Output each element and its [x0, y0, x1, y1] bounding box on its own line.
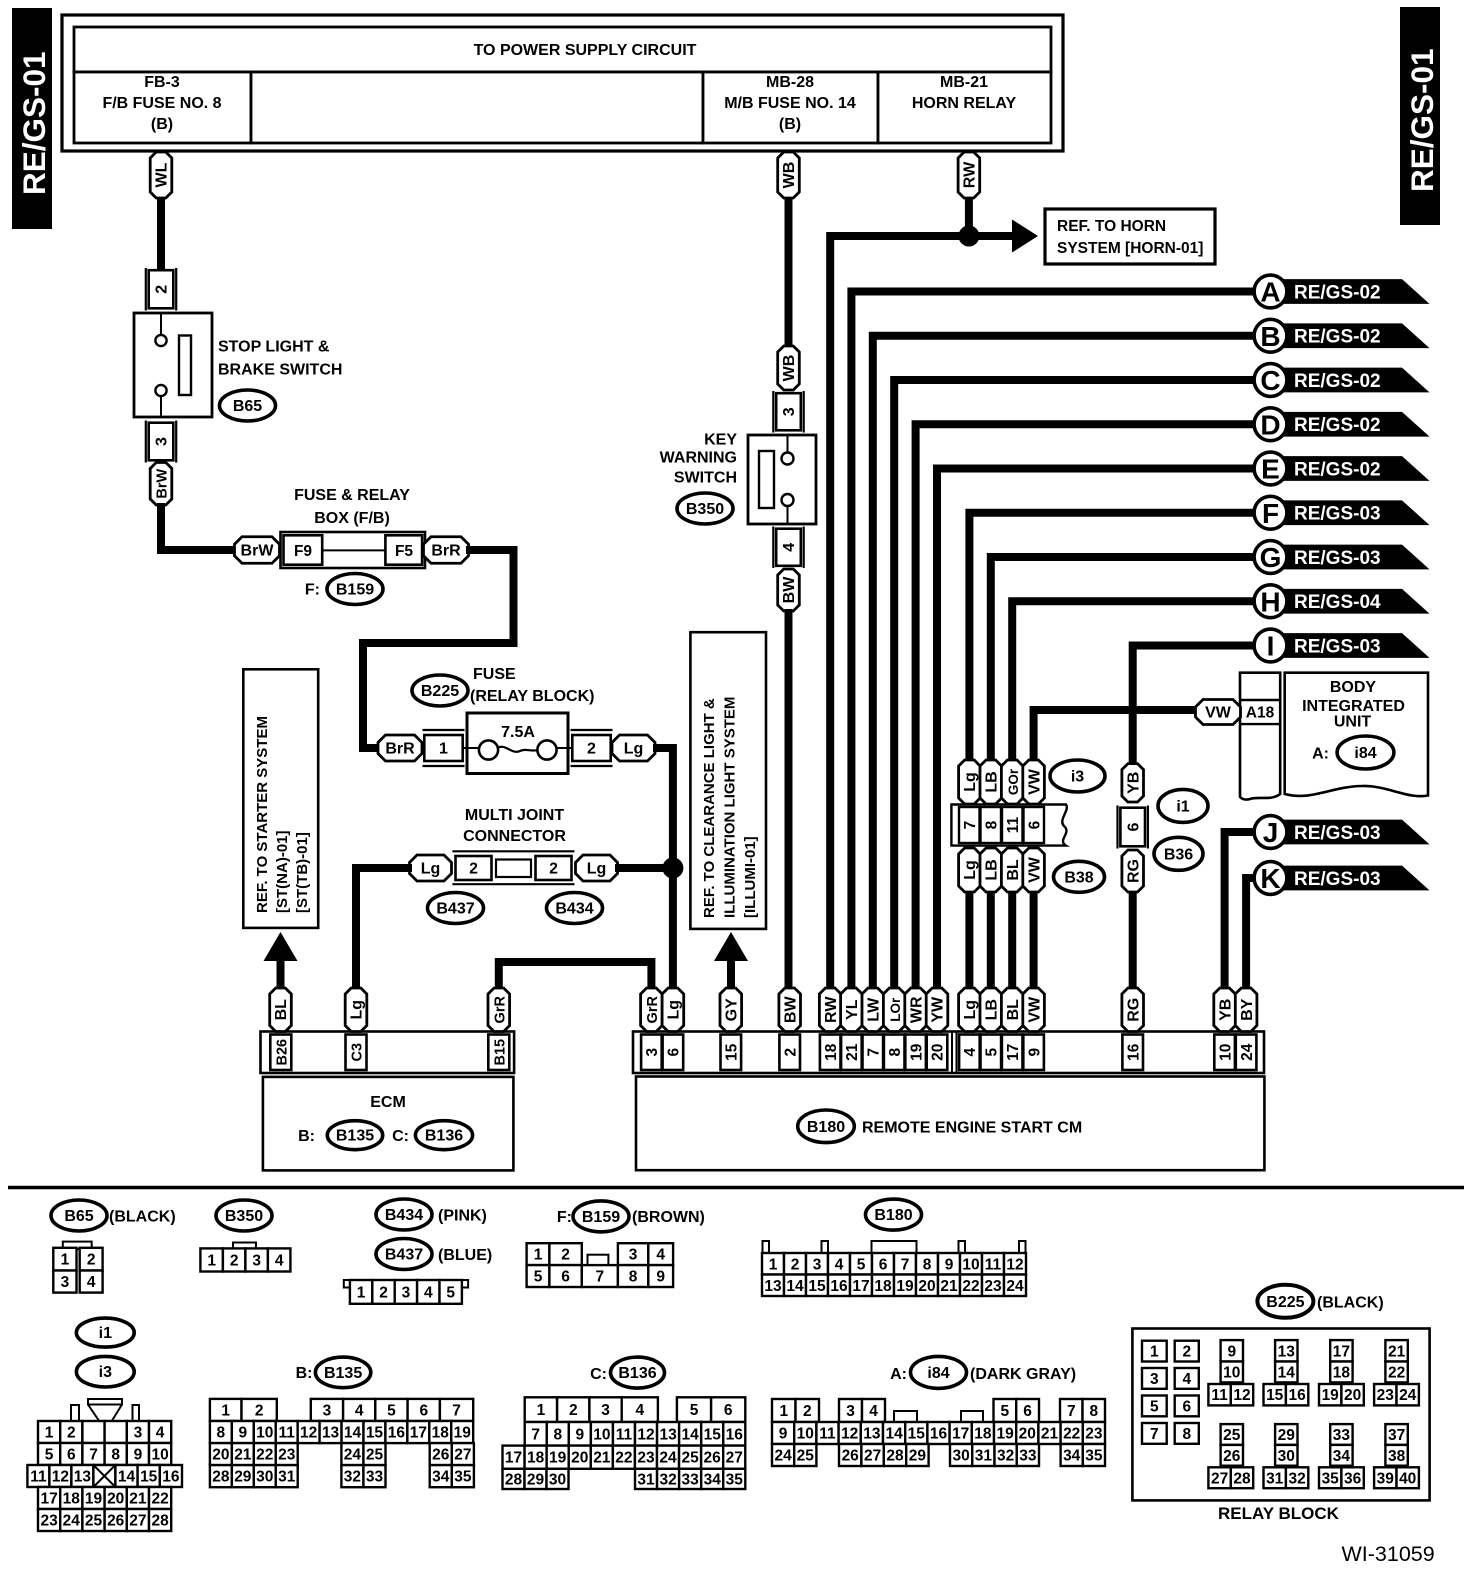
svg-text:BRAKE SWITCH: BRAKE SWITCH	[218, 362, 342, 379]
svg-text:i1: i1	[99, 1325, 112, 1342]
svg-text:24: 24	[774, 1448, 792, 1465]
svg-text:RELAY BLOCK: RELAY BLOCK	[1218, 1504, 1340, 1523]
svg-text:14: 14	[344, 1425, 362, 1442]
svg-text:ECM: ECM	[370, 1094, 406, 1111]
svg-text:32: 32	[659, 1471, 676, 1488]
svg-text:M/B FUSE NO. 14: M/B FUSE NO. 14	[724, 95, 856, 112]
svg-text:21: 21	[234, 1447, 252, 1464]
svg-text:17: 17	[1333, 1343, 1350, 1360]
svg-text:16: 16	[162, 1469, 180, 1486]
svg-text:F9: F9	[294, 543, 312, 560]
svg-text:3: 3	[61, 1274, 70, 1291]
svg-text:15: 15	[704, 1426, 722, 1443]
svg-text:17: 17	[952, 1426, 969, 1443]
svg-text:19: 19	[996, 1426, 1014, 1443]
svg-text:23: 23	[1377, 1387, 1395, 1404]
svg-text:18: 18	[432, 1425, 450, 1442]
svg-text:1: 1	[207, 1252, 216, 1269]
svg-text:YB: YB	[1125, 772, 1142, 794]
svg-text:Lg: Lg	[421, 861, 441, 878]
svg-text:(DARK GRAY): (DARK GRAY)	[970, 1366, 1076, 1383]
svg-text:1: 1	[221, 1402, 230, 1419]
svg-text:21: 21	[1041, 1426, 1059, 1443]
svg-text:I: I	[1267, 631, 1275, 662]
svg-text:RE/GS-02: RE/GS-02	[1294, 459, 1381, 480]
svg-text:6: 6	[419, 1402, 428, 1419]
svg-text:2: 2	[87, 1252, 96, 1269]
svg-text:11: 11	[819, 1426, 836, 1443]
svg-text:15: 15	[1266, 1387, 1284, 1404]
svg-text:B136: B136	[425, 1128, 463, 1145]
svg-text:Lg: Lg	[666, 1000, 683, 1020]
svg-text:12: 12	[841, 1426, 858, 1443]
svg-text:9: 9	[1227, 1343, 1236, 1360]
svg-text:2: 2	[791, 1256, 800, 1273]
svg-text:F5: F5	[395, 543, 413, 560]
svg-text:27: 27	[1211, 1470, 1228, 1487]
svg-text:3: 3	[629, 1247, 638, 1264]
svg-text:24: 24	[659, 1450, 677, 1467]
svg-text:32: 32	[344, 1469, 361, 1486]
svg-text:6: 6	[1182, 1398, 1191, 1415]
svg-text:BODY: BODY	[1330, 679, 1377, 696]
svg-text:HORN RELAY: HORN RELAY	[912, 95, 1017, 112]
svg-text:B15: B15	[493, 1039, 509, 1066]
svg-text:B:: B:	[298, 1128, 315, 1145]
svg-text:40: 40	[1399, 1470, 1416, 1487]
svg-text:i3: i3	[99, 1364, 112, 1381]
svg-text:BW: BW	[782, 996, 799, 1024]
svg-text:24: 24	[63, 1513, 81, 1530]
svg-text:14: 14	[885, 1426, 903, 1443]
svg-text:WARNING: WARNING	[660, 450, 737, 467]
svg-text:YW: YW	[930, 996, 947, 1023]
svg-text:REF. TO HORN: REF. TO HORN	[1057, 218, 1166, 235]
svg-text:RE/GS-02: RE/GS-02	[1294, 282, 1381, 303]
svg-text:20: 20	[918, 1278, 935, 1295]
svg-text:9: 9	[134, 1447, 143, 1464]
svg-text:SYSTEM [HORN-01]: SYSTEM [HORN-01]	[1057, 240, 1203, 257]
svg-text:26: 26	[107, 1513, 125, 1530]
svg-text:12: 12	[1006, 1256, 1023, 1273]
svg-text:4: 4	[869, 1403, 878, 1420]
svg-text:2: 2	[587, 741, 596, 758]
svg-text:16: 16	[388, 1425, 406, 1442]
svg-text:1: 1	[1150, 1344, 1159, 1361]
svg-text:A18: A18	[1246, 705, 1275, 722]
svg-text:9: 9	[238, 1425, 247, 1442]
svg-text:4: 4	[275, 1252, 284, 1269]
svg-text:10: 10	[151, 1447, 168, 1464]
svg-text:20: 20	[930, 1044, 947, 1061]
svg-text:VW: VW	[1026, 996, 1043, 1023]
svg-text:19: 19	[896, 1278, 914, 1295]
svg-text:6: 6	[879, 1256, 888, 1273]
svg-text:29: 29	[1278, 1427, 1296, 1444]
svg-text:Lg: Lg	[962, 860, 979, 880]
svg-text:6: 6	[67, 1447, 76, 1464]
svg-text:15: 15	[808, 1278, 826, 1295]
svg-text:8: 8	[217, 1425, 226, 1442]
svg-text:GY: GY	[724, 998, 741, 1021]
svg-text:9: 9	[1026, 1048, 1043, 1057]
svg-text:11: 11	[616, 1426, 633, 1443]
svg-text:21: 21	[844, 1043, 861, 1061]
svg-text:24: 24	[1239, 1043, 1256, 1061]
svg-text:16: 16	[930, 1426, 948, 1443]
svg-text:1: 1	[61, 1252, 70, 1269]
svg-text:20: 20	[212, 1447, 229, 1464]
svg-text:17: 17	[852, 1278, 869, 1295]
svg-text:Lg: Lg	[962, 772, 979, 792]
svg-text:5: 5	[857, 1256, 866, 1273]
svg-text:J: J	[1263, 817, 1279, 848]
svg-text:BrR: BrR	[431, 543, 461, 560]
svg-text:2: 2	[561, 1247, 570, 1264]
svg-text:RE/GS-02: RE/GS-02	[1294, 415, 1381, 436]
svg-text:1: 1	[779, 1403, 788, 1420]
svg-text:9: 9	[576, 1426, 585, 1443]
svg-text:2: 2	[230, 1252, 239, 1269]
svg-text:STOP LIGHT &: STOP LIGHT &	[218, 339, 330, 356]
svg-text:B180: B180	[874, 1207, 912, 1224]
svg-text:REF. TO CLEARANCE LIGHT &: REF. TO CLEARANCE LIGHT &	[701, 698, 718, 918]
svg-text:20: 20	[1344, 1387, 1361, 1404]
svg-text:6: 6	[561, 1269, 570, 1286]
svg-text:16: 16	[1125, 1043, 1142, 1061]
svg-text:B136: B136	[618, 1365, 656, 1382]
svg-text:17: 17	[40, 1491, 57, 1508]
svg-text:24: 24	[344, 1447, 362, 1464]
svg-text:A:: A:	[1312, 746, 1329, 763]
svg-text:22: 22	[962, 1278, 979, 1295]
svg-text:1: 1	[357, 1284, 366, 1301]
svg-text:30: 30	[953, 1448, 970, 1465]
svg-text:5: 5	[984, 1048, 1001, 1057]
svg-text:5: 5	[45, 1447, 54, 1464]
svg-text:16: 16	[1288, 1387, 1306, 1404]
svg-text:7: 7	[452, 1402, 461, 1419]
svg-text:B65: B65	[64, 1208, 93, 1225]
svg-text:31: 31	[637, 1471, 655, 1488]
svg-text:E: E	[1261, 454, 1280, 485]
svg-text:F: F	[1262, 498, 1279, 529]
svg-text:25: 25	[1223, 1427, 1241, 1444]
svg-text:SWITCH: SWITCH	[674, 470, 737, 487]
svg-text:(RELAY BLOCK): (RELAY BLOCK)	[470, 688, 594, 705]
svg-text:19: 19	[549, 1450, 567, 1467]
svg-text:25: 25	[681, 1450, 699, 1467]
svg-text:26: 26	[432, 1447, 450, 1464]
svg-text:YB: YB	[1217, 999, 1234, 1021]
svg-text:8: 8	[1089, 1403, 1098, 1420]
svg-text:RE/GS-02: RE/GS-02	[1294, 371, 1381, 392]
svg-text:29: 29	[234, 1469, 252, 1486]
svg-text:FUSE: FUSE	[473, 666, 516, 683]
svg-text:22: 22	[1063, 1426, 1080, 1443]
svg-text:29: 29	[909, 1448, 927, 1465]
svg-text:INTEGRATED: INTEGRATED	[1302, 698, 1405, 715]
svg-text:27: 27	[864, 1448, 881, 1465]
svg-text:3: 3	[323, 1402, 332, 1419]
svg-text:MULTI JOINT: MULTI JOINT	[465, 807, 564, 824]
svg-text:21: 21	[593, 1450, 611, 1467]
svg-text:B135: B135	[336, 1128, 374, 1145]
svg-text:17: 17	[410, 1425, 427, 1442]
svg-text:B36: B36	[1164, 846, 1193, 863]
svg-text:YL: YL	[844, 999, 861, 1020]
svg-text:LB: LB	[984, 999, 1001, 1020]
svg-text:34: 34	[432, 1469, 450, 1486]
svg-text:32: 32	[1288, 1470, 1305, 1487]
svg-text:27: 27	[454, 1447, 471, 1464]
svg-text:19: 19	[454, 1425, 472, 1442]
svg-text:UNIT: UNIT	[1334, 714, 1372, 731]
svg-text:WL: WL	[154, 162, 171, 187]
svg-text:24: 24	[1399, 1387, 1417, 1404]
svg-text:4: 4	[355, 1402, 364, 1419]
svg-text:25: 25	[797, 1448, 815, 1465]
svg-text:10: 10	[797, 1426, 814, 1443]
svg-text:18: 18	[823, 1043, 840, 1061]
svg-text:19: 19	[1322, 1387, 1340, 1404]
svg-text:BW: BW	[781, 576, 798, 604]
svg-text:13: 13	[863, 1426, 881, 1443]
svg-text:20: 20	[571, 1450, 588, 1467]
svg-text:5: 5	[1150, 1398, 1159, 1415]
svg-text:(PINK): (PINK)	[438, 1208, 487, 1225]
svg-text:7: 7	[1150, 1426, 1159, 1443]
svg-text:11: 11	[985, 1256, 1002, 1273]
svg-text:RE/GS-01: RE/GS-01	[16, 51, 52, 195]
svg-text:15: 15	[366, 1425, 384, 1442]
svg-text:31: 31	[278, 1469, 296, 1486]
svg-text:2: 2	[803, 1403, 812, 1420]
svg-text:B350: B350	[686, 501, 724, 518]
svg-text:B26: B26	[275, 1039, 291, 1066]
svg-text:RG: RG	[1125, 998, 1142, 1022]
svg-text:6: 6	[724, 1402, 733, 1419]
svg-text:12: 12	[300, 1425, 317, 1442]
svg-text:5: 5	[446, 1284, 455, 1301]
svg-text:[ILLUMI-01]: [ILLUMI-01]	[742, 836, 759, 918]
svg-text:3: 3	[252, 1252, 261, 1269]
svg-text:29: 29	[527, 1471, 545, 1488]
svg-text:9: 9	[656, 1269, 665, 1286]
svg-text:i84: i84	[1354, 745, 1376, 762]
svg-text:BY: BY	[1239, 998, 1256, 1021]
svg-text:H: H	[1260, 586, 1280, 617]
svg-text:12: 12	[1233, 1387, 1250, 1404]
svg-text:B159: B159	[336, 582, 374, 599]
svg-text:15: 15	[140, 1469, 158, 1486]
svg-text:7: 7	[901, 1256, 910, 1273]
svg-text:4: 4	[835, 1256, 844, 1273]
svg-text:10: 10	[256, 1425, 273, 1442]
svg-text:18: 18	[63, 1491, 81, 1508]
svg-text:3: 3	[134, 1425, 143, 1442]
svg-text:8: 8	[629, 1269, 638, 1286]
svg-text:7.5A: 7.5A	[501, 724, 535, 741]
svg-text:26: 26	[704, 1450, 722, 1467]
svg-text:B:: B:	[296, 1365, 313, 1382]
svg-text:2: 2	[154, 285, 171, 294]
svg-text:MB-28: MB-28	[766, 74, 814, 91]
svg-text:3: 3	[644, 1048, 661, 1057]
svg-text:16: 16	[726, 1426, 744, 1443]
svg-text:(BLACK): (BLACK)	[109, 1209, 176, 1226]
svg-text:3: 3	[813, 1256, 822, 1273]
svg-text:B225: B225	[1266, 1294, 1304, 1311]
svg-text:11: 11	[1005, 816, 1022, 833]
svg-text:RW: RW	[823, 996, 840, 1023]
svg-text:2: 2	[1182, 1344, 1191, 1361]
svg-text:37: 37	[1388, 1427, 1405, 1444]
svg-text:B: B	[1260, 321, 1280, 352]
svg-text:31: 31	[975, 1448, 993, 1465]
svg-text:i3: i3	[1071, 769, 1084, 786]
svg-text:BOX (F/B): BOX (F/B)	[314, 510, 390, 527]
svg-text:33: 33	[366, 1469, 384, 1486]
svg-text:5: 5	[690, 1402, 699, 1419]
svg-text:35: 35	[454, 1469, 472, 1486]
svg-text:[ST(TB)-01]: [ST(TB)-01]	[294, 832, 311, 913]
svg-text:RE/GS-03: RE/GS-03	[1294, 504, 1381, 525]
svg-text:35: 35	[1085, 1448, 1103, 1465]
svg-text:11: 11	[1211, 1387, 1228, 1404]
svg-text:28: 28	[886, 1448, 904, 1465]
svg-text:7: 7	[596, 1269, 605, 1286]
svg-text:28: 28	[1233, 1470, 1251, 1487]
svg-text:K: K	[1260, 863, 1280, 894]
svg-text:B434: B434	[555, 901, 593, 918]
svg-text:Lg: Lg	[962, 1000, 979, 1020]
svg-text:3: 3	[402, 1284, 411, 1301]
svg-text:18: 18	[527, 1450, 545, 1467]
svg-text:B434: B434	[385, 1207, 423, 1224]
svg-text:3: 3	[1150, 1371, 1159, 1388]
svg-text:18: 18	[1333, 1364, 1351, 1381]
svg-text:17: 17	[505, 1450, 522, 1467]
svg-text:MB-21: MB-21	[940, 74, 988, 91]
svg-text:14: 14	[1278, 1364, 1296, 1381]
svg-text:i1: i1	[1176, 798, 1189, 815]
svg-text:5: 5	[534, 1269, 543, 1286]
svg-text:RE/GS-02: RE/GS-02	[1294, 327, 1381, 348]
svg-text:36: 36	[1344, 1470, 1362, 1487]
svg-text:39: 39	[1377, 1470, 1395, 1487]
svg-text:8: 8	[1182, 1426, 1191, 1443]
svg-text:2: 2	[782, 1048, 799, 1057]
svg-text:BL: BL	[1005, 999, 1022, 1021]
svg-text:LB: LB	[984, 859, 1001, 880]
svg-text:i84: i84	[927, 1365, 949, 1382]
svg-text:RG: RG	[1125, 859, 1142, 883]
svg-text:31: 31	[1266, 1470, 1284, 1487]
svg-text:32: 32	[997, 1448, 1014, 1465]
svg-text:BrW: BrW	[155, 469, 171, 499]
svg-text:2: 2	[379, 1284, 388, 1301]
svg-text:BL: BL	[1005, 859, 1022, 881]
svg-text:GrR: GrR	[493, 996, 509, 1024]
svg-text:WR: WR	[908, 996, 925, 1023]
svg-text:BL: BL	[273, 999, 290, 1021]
svg-text:2: 2	[255, 1402, 264, 1419]
svg-text:C:: C:	[392, 1128, 409, 1145]
svg-text:7: 7	[866, 1048, 883, 1057]
svg-text:(BLUE): (BLUE)	[438, 1247, 492, 1264]
svg-text:8: 8	[553, 1426, 562, 1443]
svg-text:[ST(NA)-01]: [ST(NA)-01]	[274, 831, 291, 914]
svg-text:21: 21	[940, 1278, 958, 1295]
svg-text:17: 17	[1005, 1044, 1022, 1061]
svg-text:33: 33	[1333, 1427, 1351, 1444]
svg-text:10: 10	[1223, 1364, 1240, 1381]
svg-text:16: 16	[830, 1278, 848, 1295]
svg-text:25: 25	[85, 1513, 103, 1530]
svg-text:8: 8	[111, 1447, 120, 1464]
svg-text:2: 2	[569, 1402, 578, 1419]
svg-text:WB: WB	[781, 162, 798, 189]
svg-text:11: 11	[278, 1425, 295, 1442]
svg-text:RE/GS-04: RE/GS-04	[1294, 592, 1381, 613]
svg-text:14: 14	[118, 1469, 136, 1486]
svg-text:WB: WB	[781, 355, 798, 382]
svg-text:11: 11	[30, 1469, 47, 1486]
svg-text:22: 22	[256, 1447, 273, 1464]
svg-text:25: 25	[366, 1447, 384, 1464]
svg-text:15: 15	[908, 1426, 926, 1443]
svg-text:B437: B437	[385, 1247, 423, 1264]
svg-text:G: G	[1260, 542, 1282, 573]
svg-text:VW: VW	[1205, 705, 1232, 722]
svg-text:18: 18	[874, 1278, 892, 1295]
svg-text:27: 27	[129, 1513, 146, 1530]
svg-text:1: 1	[534, 1247, 543, 1264]
svg-text:23: 23	[637, 1450, 655, 1467]
svg-text:23: 23	[1085, 1426, 1103, 1443]
svg-text:19: 19	[85, 1491, 103, 1508]
svg-text:REMOTE ENGINE START CM: REMOTE ENGINE START CM	[862, 1120, 1082, 1137]
svg-text:7: 7	[531, 1426, 540, 1443]
svg-text:24: 24	[1006, 1278, 1024, 1295]
svg-text:7: 7	[962, 821, 979, 830]
svg-text:F:: F:	[557, 1209, 572, 1226]
svg-text:13: 13	[1278, 1343, 1296, 1360]
svg-text:20: 20	[107, 1491, 124, 1508]
svg-text:B159: B159	[582, 1209, 620, 1226]
svg-text:7: 7	[89, 1447, 98, 1464]
svg-text:23: 23	[278, 1447, 296, 1464]
svg-text:GrR: GrR	[645, 996, 661, 1024]
svg-text:(B): (B)	[151, 116, 173, 133]
svg-text:3: 3	[846, 1403, 855, 1420]
svg-text:(BLACK): (BLACK)	[1317, 1295, 1384, 1312]
svg-text:RE/GS-03: RE/GS-03	[1294, 823, 1381, 844]
svg-text:38: 38	[1388, 1448, 1406, 1465]
svg-text:VW: VW	[1026, 768, 1043, 795]
svg-text:BrW: BrW	[241, 543, 275, 560]
svg-text:27: 27	[726, 1450, 743, 1467]
svg-text:B38: B38	[1064, 869, 1093, 886]
svg-text:5: 5	[387, 1402, 396, 1419]
svg-text:RE/GS-03: RE/GS-03	[1294, 869, 1381, 890]
svg-text:23: 23	[40, 1513, 58, 1530]
svg-text:Lg: Lg	[587, 861, 607, 878]
svg-text:Lg: Lg	[349, 1000, 366, 1020]
svg-text:2: 2	[549, 861, 558, 878]
svg-text:3: 3	[154, 437, 171, 446]
